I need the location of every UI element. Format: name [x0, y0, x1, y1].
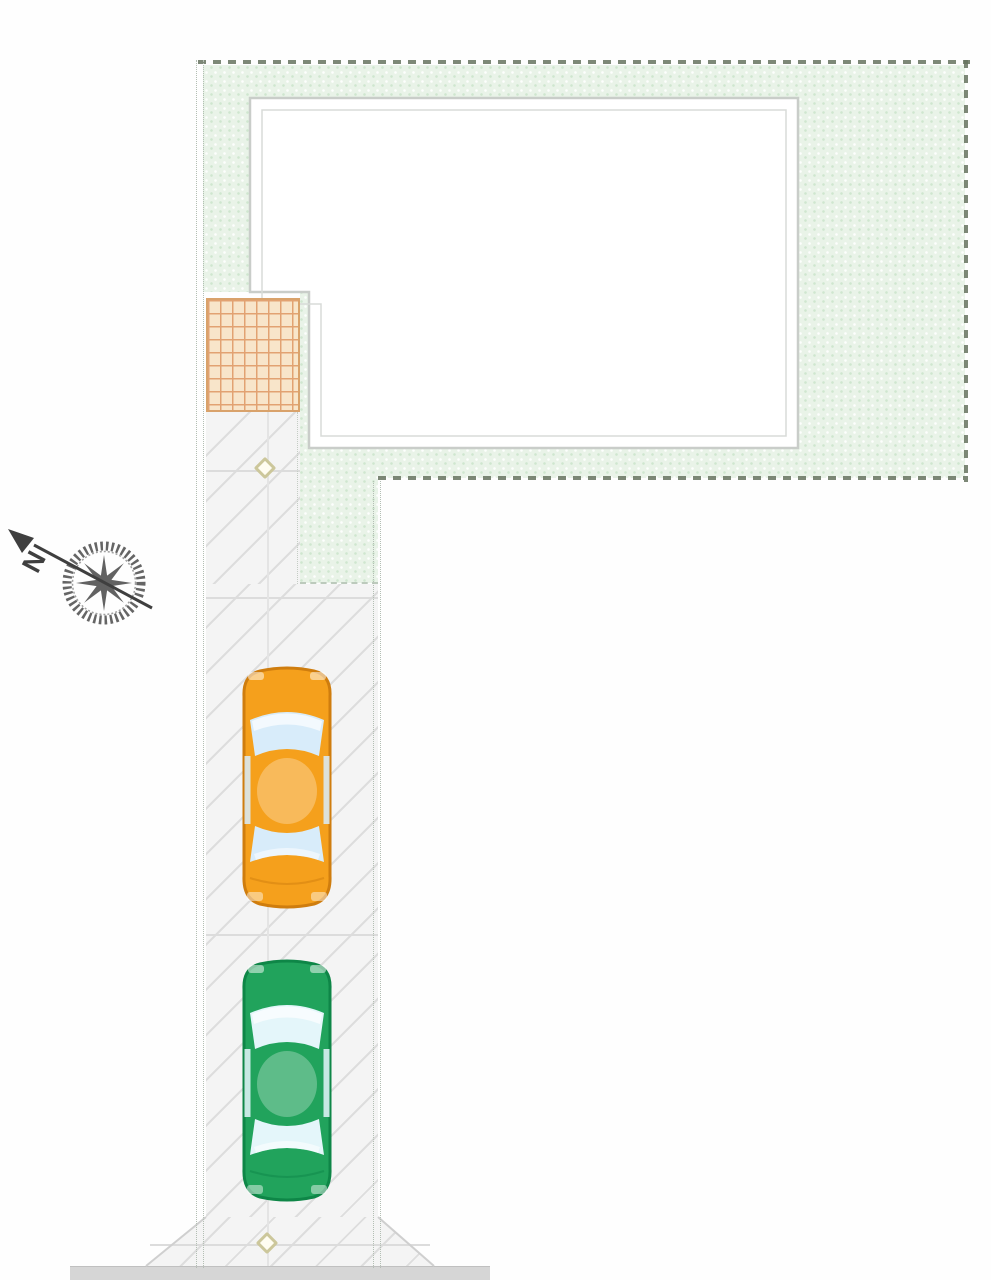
boundary-line-west [196, 60, 204, 1268]
car-side-window [245, 756, 251, 824]
car-side-window [324, 1049, 330, 1117]
car-green [234, 956, 340, 1204]
boundary-line-north [198, 60, 970, 64]
compass-rose: N [0, 516, 170, 648]
apron-flare-right [378, 1217, 434, 1266]
car-taillight [311, 892, 327, 901]
car-headlight [310, 672, 326, 680]
car-taillight [247, 1185, 263, 1194]
car-side-window [245, 1049, 251, 1117]
site-plan: N [0, 0, 991, 1280]
boundary-line-driveway-east [373, 481, 381, 1268]
car-headlight [248, 672, 264, 680]
car-taillight [247, 892, 263, 901]
car-side-window [324, 756, 330, 824]
car-taillight [311, 1185, 327, 1194]
north-arrow-shaft [34, 545, 152, 608]
car-roof-highlight [257, 1051, 317, 1117]
car-orange [234, 664, 340, 910]
building-outer-wall [250, 98, 798, 448]
boundary-line-east [964, 60, 968, 482]
boundary-line-south-of-garden [378, 476, 968, 480]
tiled-terrace [206, 298, 300, 412]
car-roof-highlight [257, 758, 317, 824]
car-headlight [310, 965, 326, 973]
car-headlight [248, 965, 264, 973]
